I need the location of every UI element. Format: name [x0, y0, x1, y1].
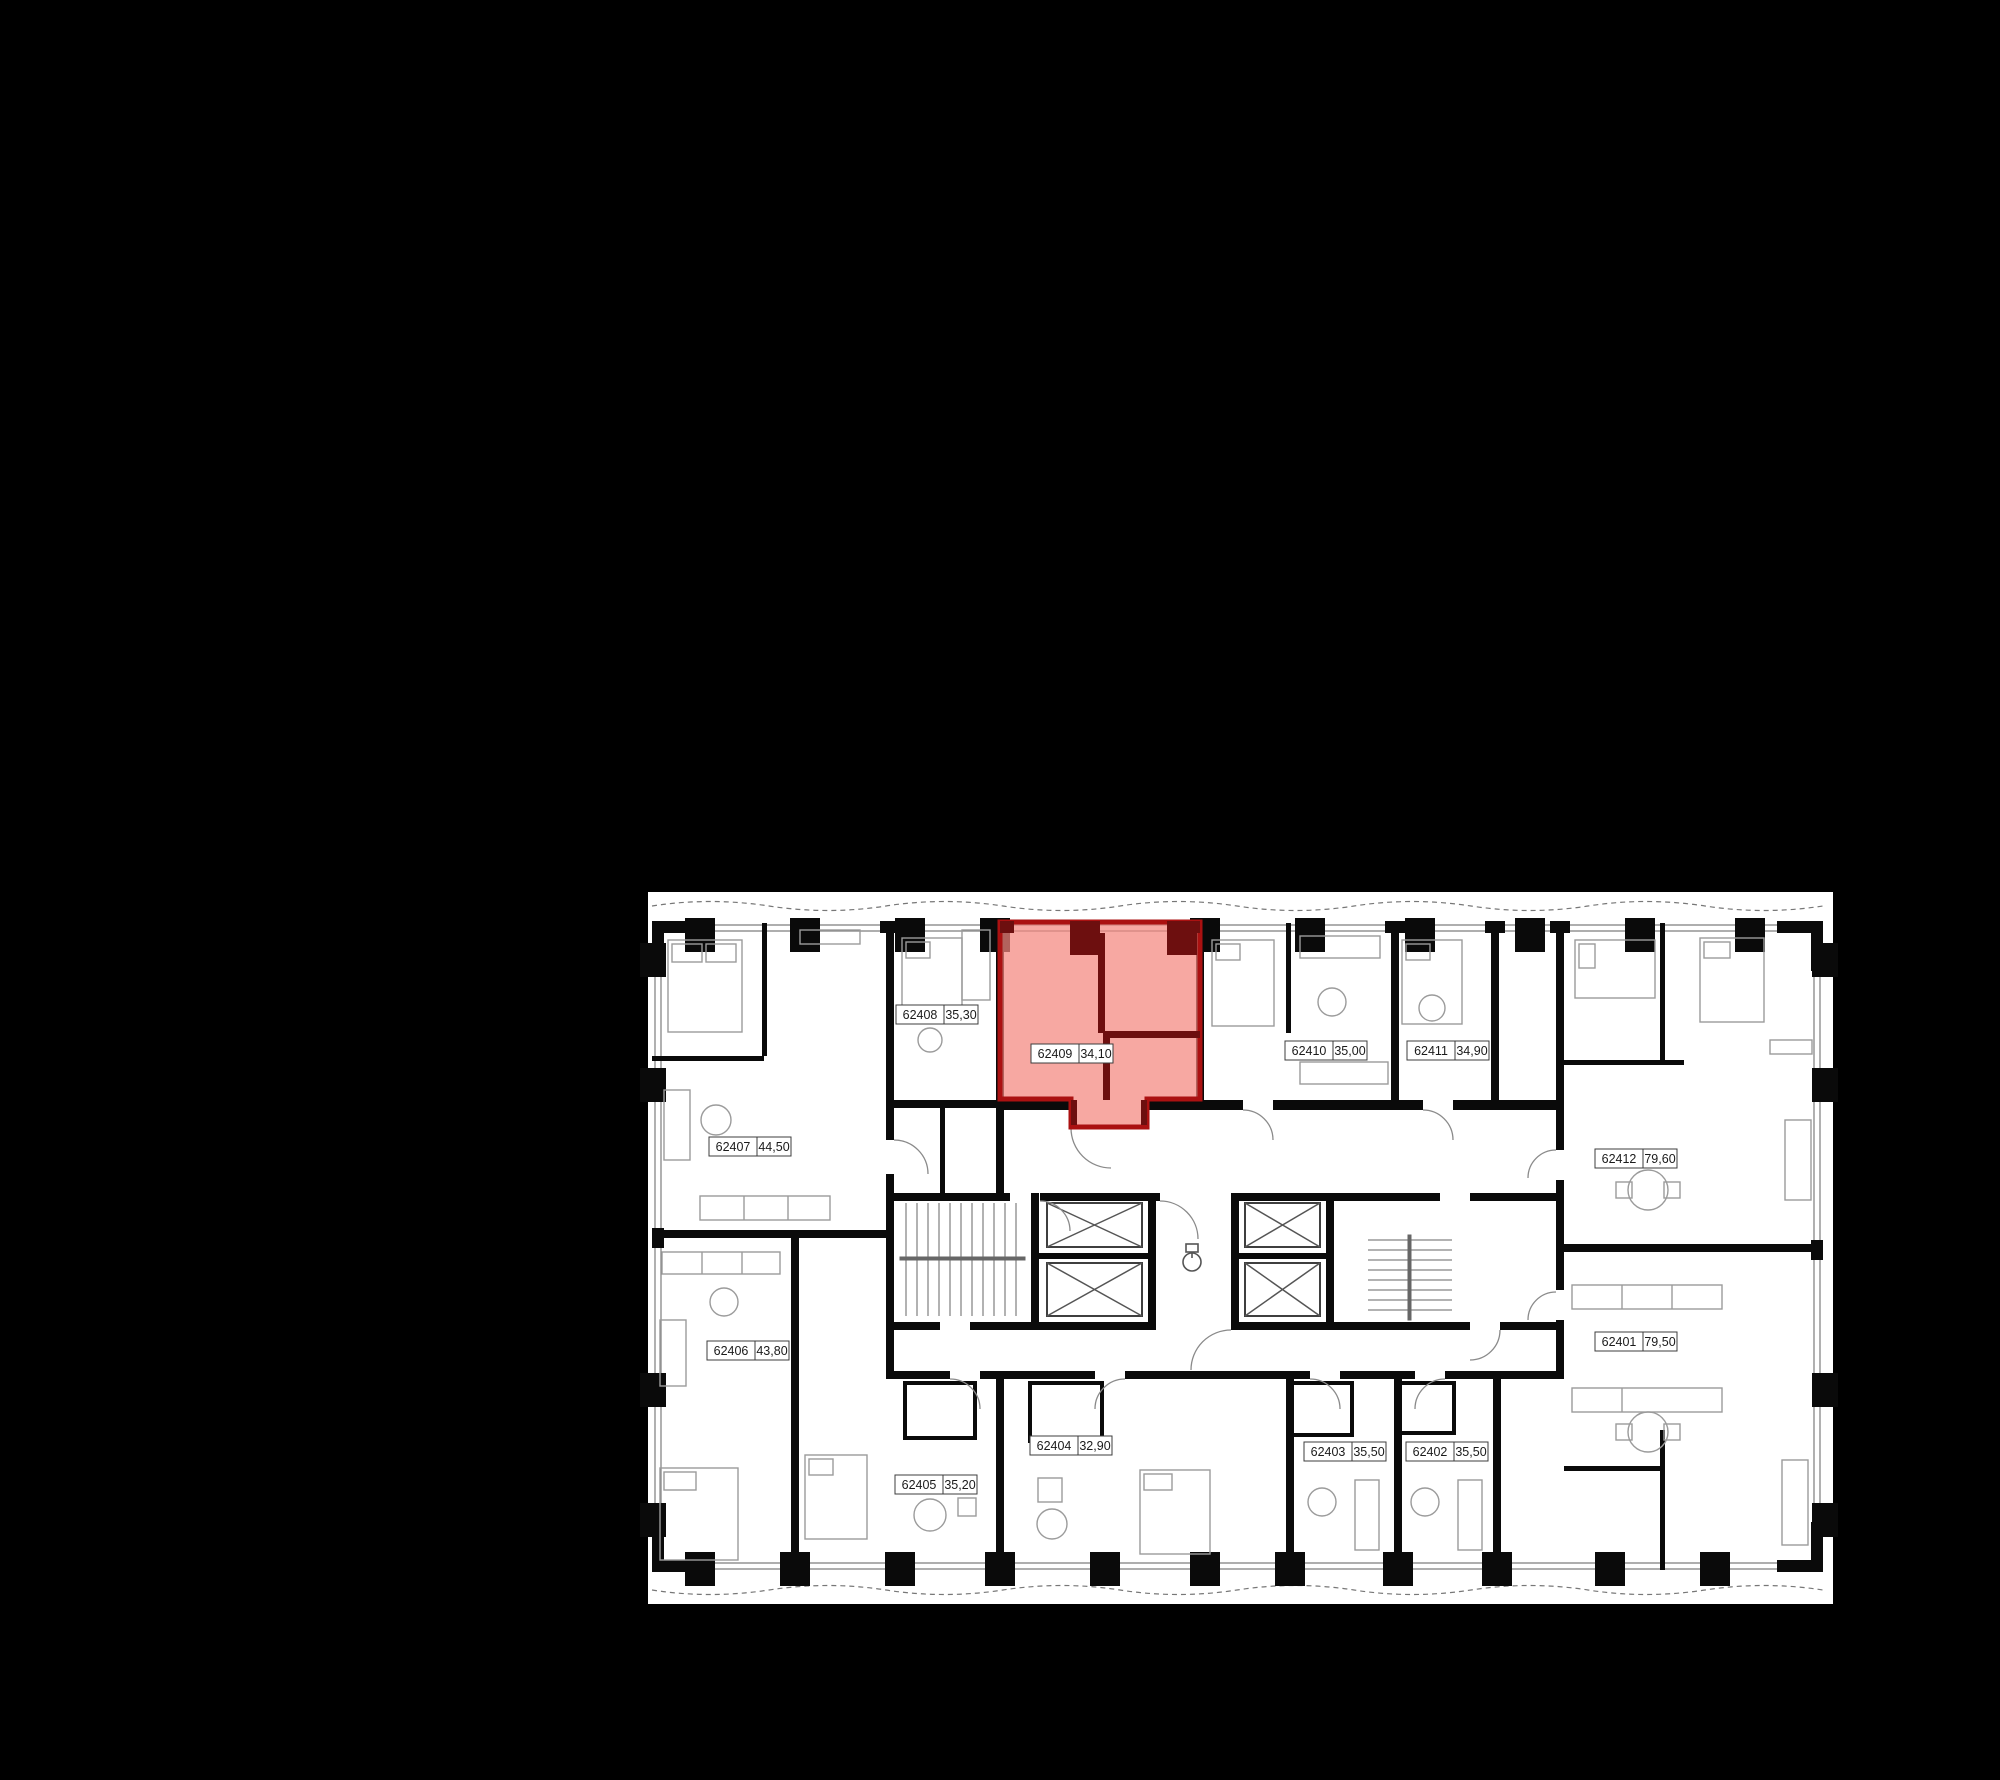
svg-text:35,50: 35,50 [1353, 1445, 1384, 1459]
unit-label-62407: 62407 44,50 [709, 1137, 791, 1156]
selected-unit-62409[interactable] [1000, 921, 1200, 1127]
svg-text:62411: 62411 [1414, 1044, 1448, 1058]
svg-text:35,00: 35,00 [1334, 1044, 1365, 1058]
floorplan-svg: 62408 35,30 62409 34,10 62410 35,00 6241… [0, 0, 2000, 1780]
svg-text:62409: 62409 [1038, 1047, 1073, 1061]
svg-text:62401: 62401 [1602, 1335, 1637, 1349]
unit-label-62404: 62404 32,90 [1030, 1436, 1112, 1455]
unit-label-62405: 62405 35,20 [895, 1475, 977, 1494]
svg-text:34,10: 34,10 [1080, 1047, 1111, 1061]
unit-label-62412: 62412 79,60 [1595, 1149, 1677, 1168]
svg-text:35,30: 35,30 [945, 1008, 976, 1022]
svg-text:62410: 62410 [1292, 1044, 1327, 1058]
svg-text:62408: 62408 [903, 1008, 938, 1022]
screen: 62408 35,30 62409 34,10 62410 35,00 6241… [0, 0, 2000, 1780]
svg-text:79,60: 79,60 [1644, 1152, 1675, 1166]
svg-text:34,90: 34,90 [1456, 1044, 1487, 1058]
unit-label-62410: 62410 35,00 [1285, 1041, 1367, 1060]
svg-text:43,80: 43,80 [756, 1344, 787, 1358]
unit-label-62406: 62406 43,80 [707, 1341, 789, 1360]
unit-label-62409: 62409 34,10 [1031, 1044, 1113, 1063]
unit-label-62411: 62411 34,90 [1407, 1041, 1489, 1060]
svg-text:62403: 62403 [1311, 1445, 1346, 1459]
svg-text:44,50: 44,50 [758, 1140, 789, 1154]
svg-text:62404: 62404 [1037, 1439, 1072, 1453]
unit-label-62408: 62408 35,30 [896, 1005, 978, 1024]
svg-text:79,50: 79,50 [1644, 1335, 1675, 1349]
svg-text:62405: 62405 [902, 1478, 937, 1492]
svg-text:62406: 62406 [714, 1344, 749, 1358]
svg-text:62407: 62407 [716, 1140, 751, 1154]
svg-text:62402: 62402 [1413, 1445, 1448, 1459]
svg-text:62412: 62412 [1602, 1152, 1637, 1166]
unit-label-62402: 62402 35,50 [1406, 1442, 1488, 1461]
svg-text:32,90: 32,90 [1079, 1439, 1110, 1453]
unit-label-62401: 62401 79,50 [1595, 1332, 1677, 1351]
svg-text:35,50: 35,50 [1455, 1445, 1486, 1459]
svg-text:35,20: 35,20 [944, 1478, 975, 1492]
unit-label-62403: 62403 35,50 [1304, 1442, 1386, 1461]
